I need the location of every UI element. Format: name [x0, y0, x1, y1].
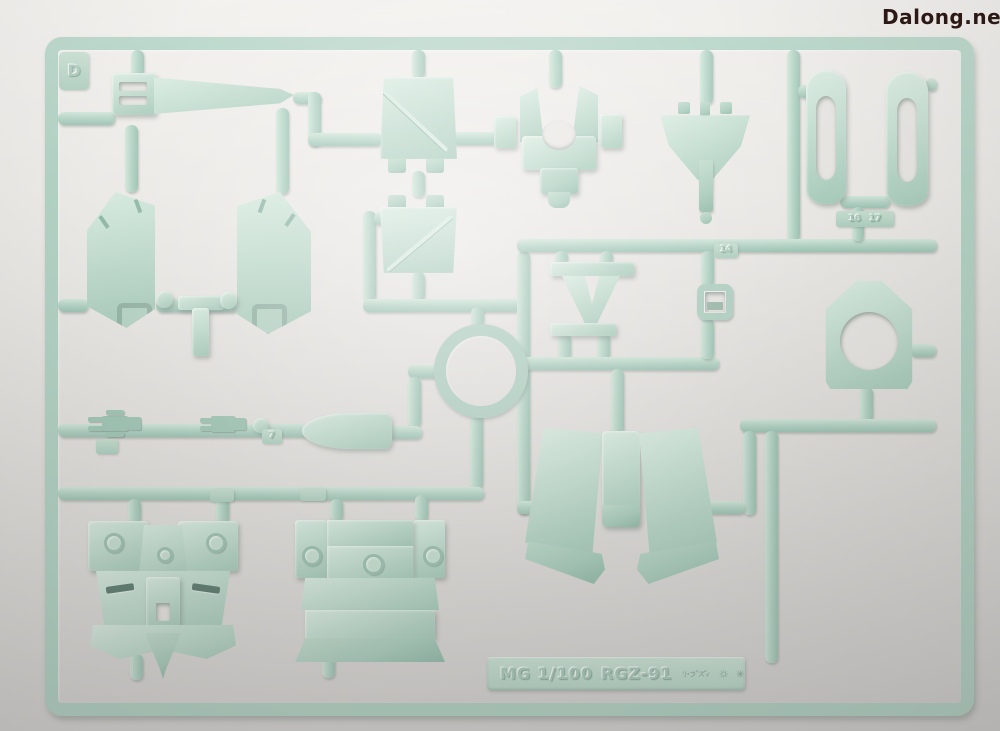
- back-lower-face: [301, 578, 439, 610]
- figure-arm: [106, 410, 124, 415]
- round-peg: [302, 546, 322, 566]
- molding-ring: [434, 324, 528, 418]
- figure-head: [234, 418, 246, 430]
- cockpit-slot: [156, 603, 170, 621]
- top-tab: [720, 102, 732, 114]
- shoulder-block-right: [178, 521, 238, 571]
- runner-bar: [860, 387, 873, 422]
- runner-letter: D: [67, 63, 80, 79]
- panel-notch: [258, 199, 267, 214]
- panel-notch: [98, 215, 109, 229]
- part-number: 16: [848, 215, 861, 224]
- top-tab: [700, 102, 710, 116]
- slot-vent: [119, 82, 147, 91]
- figure-arm: [106, 432, 124, 437]
- armor-foot: [426, 159, 444, 173]
- runner-bar: [787, 50, 800, 241]
- part-torso-front-armor: [88, 521, 238, 667]
- asterisk-mold-mark-icon: [736, 664, 745, 684]
- joint-ball: [220, 292, 237, 309]
- armor-foot: [388, 195, 406, 208]
- bezel-opening: [897, 98, 917, 182]
- part-number-tab-16-17: 16 17: [836, 211, 894, 227]
- part-chest-vent: [660, 102, 750, 180]
- top-tab: [678, 102, 690, 114]
- figure-head: [128, 417, 141, 430]
- molded-scale-text: MG 1/100: [500, 664, 593, 683]
- side-block-left: [295, 520, 327, 578]
- part-box-armor-bottom: [380, 195, 457, 273]
- round-peg: [206, 533, 226, 553]
- cockpit-block: [146, 577, 180, 627]
- runner-bar: [840, 196, 890, 208]
- part-number-tab-14: 14: [714, 243, 738, 258]
- part-thruster-bezel-right: [886, 72, 928, 206]
- back-flare-skirt: [295, 638, 445, 662]
- runner-bar: [412, 272, 425, 301]
- blank-tab: [96, 439, 118, 454]
- back-top-band: [327, 520, 413, 546]
- molded-label-plate: MG 1/100 RGZ-91: [487, 657, 745, 690]
- runner-bar: [765, 431, 778, 663]
- part-skirt-panel-right: [637, 428, 719, 604]
- round-peg: [157, 547, 173, 563]
- runner-bar: [700, 50, 713, 104]
- runner-bar: [408, 377, 421, 427]
- part-pilot-figure-seated: [200, 411, 254, 439]
- runner-bar: [125, 125, 138, 192]
- collar-bridge: [522, 136, 596, 170]
- molded-model-code: RGZ-91: [601, 664, 673, 683]
- watermark-text: Dalong.net: [882, 5, 992, 29]
- fin-bottom-bar: [550, 323, 616, 336]
- part-v-fin: [550, 255, 634, 339]
- collar-opening: [542, 120, 576, 150]
- armor-foot: [426, 195, 444, 208]
- figure-torso: [211, 416, 235, 432]
- part-square-buckle: [697, 284, 733, 320]
- blank-tab: [300, 488, 326, 501]
- panel-face: [525, 428, 603, 558]
- bezel-opening: [816, 96, 836, 180]
- collar-prong-left: [520, 88, 544, 142]
- round-peg: [363, 554, 384, 575]
- runner-bar: [58, 299, 88, 312]
- side-block-right: [413, 520, 445, 578]
- runner-bar: [701, 318, 714, 359]
- collar-foot: [540, 168, 578, 194]
- gate-paddle: [600, 114, 622, 148]
- part-torso-back-armor: [295, 520, 445, 662]
- gear-mold-mark-icon: [719, 663, 728, 685]
- runner-bar: [276, 108, 289, 194]
- back-mid-band: [327, 546, 413, 580]
- runner-bar: [412, 171, 425, 197]
- round-peg: [104, 533, 124, 553]
- part-neck-collar: [494, 86, 624, 212]
- runner-letter-tab: D: [59, 52, 89, 90]
- runner-bar: [452, 132, 497, 145]
- figure-torso: [102, 416, 128, 431]
- runner-bar: [308, 133, 382, 146]
- part-box-armor-top: [380, 77, 457, 173]
- runner-bar: [388, 426, 422, 439]
- part-number: 14: [720, 246, 733, 255]
- vent-stem: [699, 160, 713, 212]
- shoulder-block-left: [88, 521, 148, 571]
- joint-ball: [156, 291, 173, 308]
- runner-bar: [743, 431, 756, 515]
- runner-bar: [363, 299, 519, 312]
- part-nose-fin-base: [112, 73, 156, 115]
- runner-bar: [415, 495, 428, 521]
- fin-top-bar: [550, 262, 634, 276]
- kana-regazy-text: [681, 663, 711, 685]
- gate-ball: [700, 212, 712, 224]
- panel-notch: [134, 199, 143, 214]
- collar-toe: [548, 192, 570, 208]
- slot-vent: [119, 96, 147, 105]
- part-pilot-figure-standing: [88, 409, 152, 439]
- part-number: 17: [869, 215, 882, 224]
- back-lower-band: [305, 610, 435, 638]
- armor-face: [380, 77, 457, 159]
- panel-face: [639, 428, 717, 558]
- part-tank-nose-cone: [302, 413, 392, 449]
- gate-paddle: [494, 116, 516, 148]
- buckle-notch: [707, 302, 723, 310]
- block-bottom-cap: [602, 505, 640, 527]
- panel-ridge: [381, 89, 449, 153]
- panel-notch: [284, 213, 295, 227]
- armor-foot: [388, 159, 406, 173]
- blank-tab: [210, 489, 234, 502]
- t-stem: [192, 308, 209, 356]
- part-skirt-panel-left: [525, 428, 605, 602]
- buckle-opening: [705, 292, 725, 312]
- runner-bar: [701, 251, 714, 287]
- round-peg: [423, 546, 443, 566]
- part-skirt-center-block: [602, 431, 640, 527]
- runner-bar: [470, 412, 483, 489]
- runner-bar: [330, 499, 343, 521]
- runner-bar: [910, 344, 936, 357]
- part-number: 7: [269, 432, 275, 441]
- part-t-joint: [178, 294, 224, 356]
- part-thruster-bezel-left: [806, 70, 846, 204]
- runner-bar: [611, 369, 624, 433]
- runner-bar: [363, 211, 376, 301]
- photo-scene: D: [0, 0, 1000, 731]
- panel-ridge: [386, 215, 454, 273]
- armor-face: [380, 207, 457, 273]
- mount-hole: [840, 312, 898, 370]
- runner-bar: [412, 50, 425, 78]
- runner-bar: [128, 499, 141, 523]
- runner-bar: [58, 112, 115, 125]
- runner-bar: [549, 50, 562, 88]
- part-number-tab-7: 7: [262, 429, 282, 444]
